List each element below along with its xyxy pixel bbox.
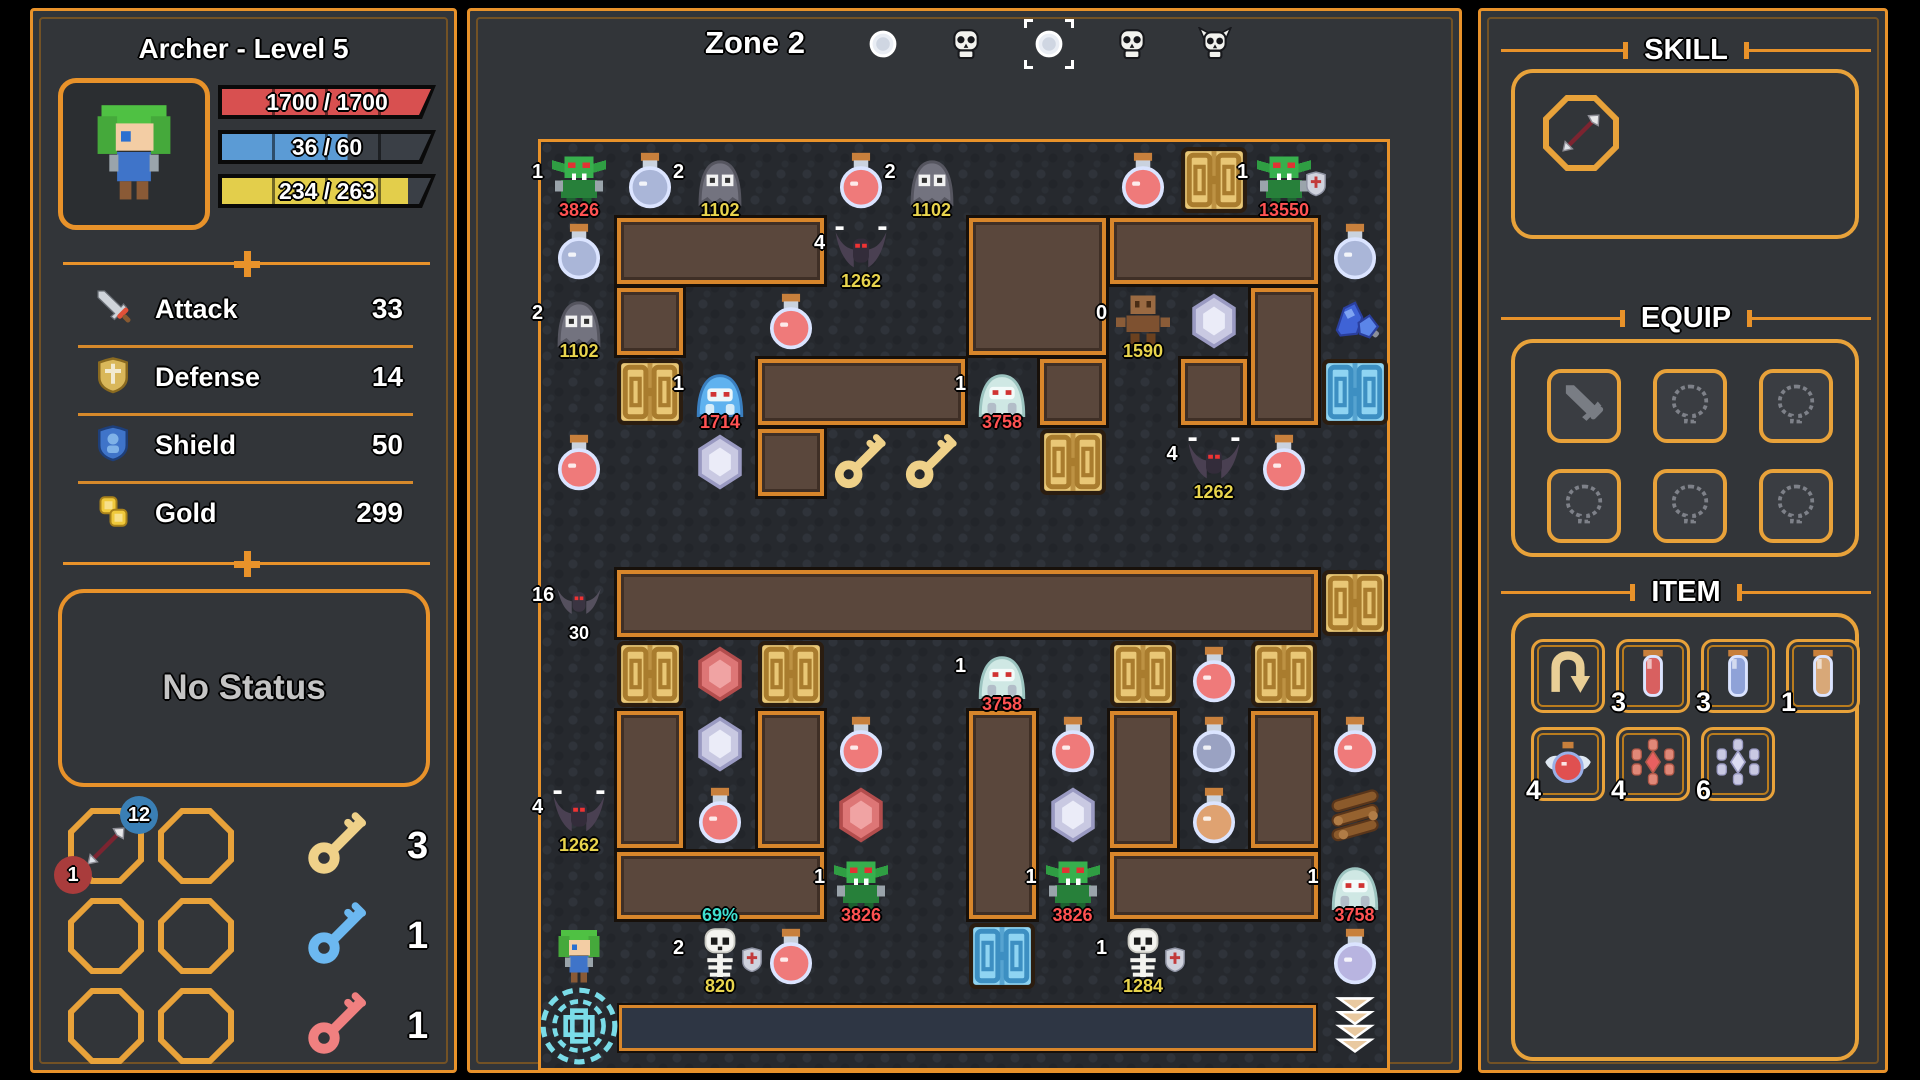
exp-value: 234 / 263: [218, 174, 436, 208]
wall-block: [969, 218, 1106, 355]
map-door-yellow[interactable]: [1108, 639, 1178, 709]
map-ghost[interactable]: 21102: [544, 286, 614, 356]
enemy-count: 2: [673, 937, 684, 960]
door-blue-sprite: [969, 923, 1035, 989]
sword-icon: [93, 287, 155, 332]
enemy-count: 1: [955, 373, 966, 396]
red-key-row: 1: [305, 988, 455, 1064]
enemy-count: 16: [532, 584, 554, 607]
item-slot-gem-cluster-white[interactable]: 6: [1701, 727, 1775, 801]
enemy-count: 0: [1096, 302, 1107, 325]
map-portal: [544, 991, 614, 1061]
door-yellow-sprite: [1110, 641, 1176, 707]
enemy-count: 1: [955, 655, 966, 678]
map-potion-red[interactable]: [1108, 145, 1178, 215]
map-goblin[interactable]: 113550: [1249, 145, 1319, 215]
map-slime-white[interactable]: 13758: [1320, 850, 1390, 920]
empty-slot: [164, 814, 228, 878]
key-yellow-sprite: [832, 433, 890, 491]
map-gem-red[interactable]: [826, 780, 896, 850]
map-potion-red[interactable]: [685, 780, 755, 850]
map-skeleton[interactable]: 69%2820: [685, 921, 755, 991]
enemy-hp: 1262: [1169, 482, 1259, 503]
stat-value: 33: [372, 293, 403, 325]
return-scroll-icon: [1542, 648, 1594, 705]
sword-icon: [1559, 379, 1609, 434]
blue-key-row: 1: [305, 898, 455, 974]
wall-block: [617, 570, 1318, 637]
empty-slot: [74, 994, 138, 1058]
selection-bracket: [1024, 19, 1033, 28]
enemy-count: 1: [814, 866, 825, 889]
gem-white-sprite: [1185, 292, 1243, 350]
enemy-hp: 1102: [534, 341, 624, 362]
map-potion-red[interactable]: [756, 921, 826, 991]
blue-key-icon: [305, 901, 371, 972]
item-slot-return-scroll[interactable]: [1531, 639, 1605, 713]
gem-white-sprite: [691, 433, 749, 491]
potion-red-sprite: [691, 786, 749, 844]
quick-skill-slot[interactable]: [158, 898, 234, 974]
enemy-hp: 13550: [1239, 200, 1329, 221]
item-box: 331446: [1511, 613, 1859, 1061]
item-slot-vial-tan[interactable]: 1: [1786, 639, 1860, 713]
item-title: ITEM: [1645, 576, 1726, 609]
equip-slot-amulet[interactable]: [1759, 469, 1833, 543]
item-count: 1: [1781, 687, 1796, 718]
enemy-hp: 30: [534, 623, 624, 644]
door-yellow-sprite: [758, 641, 824, 707]
separator: [78, 345, 413, 348]
selection-bracket: [1065, 60, 1074, 69]
stat-label: Gold: [155, 498, 356, 529]
item-slot-winged-potion[interactable]: 4: [1531, 727, 1605, 801]
zone-title: Zone 2: [640, 25, 870, 61]
map-door-blue[interactable]: [967, 921, 1037, 991]
potion-slate-sprite: [1185, 715, 1243, 773]
door-yellow-sprite: [1251, 641, 1317, 707]
equip-slot-amulet[interactable]: [1653, 369, 1727, 443]
gem-cluster-white-icon: [1712, 736, 1764, 793]
skill-cost-badge: 1: [54, 856, 92, 894]
enemy-hp: 1102: [675, 200, 765, 221]
zone-nav-icons: [866, 27, 1232, 61]
map-key-yellow[interactable]: [897, 427, 967, 497]
map-potion-red[interactable]: [756, 286, 826, 356]
stat-value: 299: [356, 497, 403, 529]
red-key-icon: [305, 991, 371, 1062]
stat-defense: Defense 14: [93, 354, 403, 400]
potion-red-sprite: [550, 433, 608, 491]
amulet-icon: [1771, 479, 1821, 534]
item-slot-vial-blue[interactable]: 3: [1701, 639, 1775, 713]
quick-skill-slot[interactable]: [68, 898, 144, 974]
empty-slot: [164, 904, 228, 968]
map-gem-white[interactable]: [685, 427, 755, 497]
coins-icon: [93, 491, 155, 536]
vial-tan-icon: [1797, 648, 1849, 705]
gem-cluster-red-icon: [1627, 736, 1679, 793]
yellow-key-icon: [305, 811, 371, 882]
map-potion-red[interactable]: [544, 427, 614, 497]
selection-bracket: [1024, 60, 1033, 69]
wall-block: [1110, 852, 1318, 919]
map-gem-white[interactable]: [1179, 286, 1249, 356]
map-potion-orange[interactable]: [1179, 780, 1249, 850]
map-door-yellow[interactable]: [615, 639, 685, 709]
item-count: 3: [1696, 687, 1711, 718]
item-section-header: ITEM: [1501, 577, 1871, 607]
vial-red-icon: [1627, 648, 1679, 705]
amulet-icon: [1665, 479, 1715, 534]
map-arrows: [1320, 991, 1390, 1061]
map-bat[interactable]: 41262: [826, 216, 896, 286]
enemy-hp: 3826: [1028, 905, 1118, 926]
stat-attack: Attack 33: [93, 286, 403, 332]
enemy-count: 1: [673, 373, 684, 396]
map-goblin[interactable]: 13826: [1038, 850, 1108, 920]
stat-label: Shield: [155, 430, 372, 461]
amulet-icon: [1559, 479, 1609, 534]
enemy-hp: 1262: [534, 835, 624, 856]
mp-bar: 36 / 60: [218, 130, 436, 164]
skill-slot[interactable]: [1543, 95, 1619, 171]
equip-section-header: EQUIP: [1501, 303, 1871, 333]
archer-avatar: [82, 100, 186, 209]
equip-title: EQUIP: [1635, 302, 1737, 335]
enemy-hp: 1102: [887, 200, 977, 221]
enemy-count: 4: [1167, 443, 1178, 466]
map-door-yellow[interactable]: [1038, 427, 1108, 497]
map-potion-red[interactable]: [1038, 709, 1108, 779]
wall-block: [1251, 711, 1318, 848]
potion-red-sprite: [832, 151, 890, 209]
map-door-yellow[interactable]: [756, 639, 826, 709]
equip-slot-amulet[interactable]: [1759, 369, 1833, 443]
hp-value: 1700 / 1700: [218, 85, 436, 119]
dungeon-map: 1382621102211021135504126221102015901171…: [538, 139, 1390, 1071]
wall-block: [758, 711, 825, 848]
shield-gold-icon: [93, 355, 155, 400]
shield-blue-icon: [93, 423, 155, 468]
empty-slot: [164, 994, 228, 1058]
enemy-count: 2: [885, 161, 896, 184]
quick-skill-slot[interactable]: [158, 808, 234, 884]
item-slot-gem-cluster-red[interactable]: 4: [1616, 727, 1690, 801]
zone-nav-demon-skull[interactable]: [1198, 27, 1232, 61]
item-count: 6: [1696, 775, 1711, 806]
map-panel: Zone 2 138262110221102113550412622110201…: [467, 8, 1462, 1073]
map-potion-blue[interactable]: [1320, 216, 1390, 286]
wall-block: [758, 359, 966, 426]
wall-block: [617, 218, 825, 285]
separator: [78, 413, 413, 416]
hp-bar: 1700 / 1700: [218, 85, 436, 119]
item-count: 4: [1611, 775, 1626, 806]
map-door-blue[interactable]: [1320, 357, 1390, 427]
gem-white-sprite: [1044, 786, 1102, 844]
potion-red-sprite: [1114, 151, 1172, 209]
bottom-trench: [619, 1005, 1316, 1051]
door-yellow-sprite: [617, 641, 683, 707]
arrows-sprite: [1326, 997, 1384, 1055]
wall-block: [1110, 711, 1177, 848]
red-key-count: 1: [407, 1005, 428, 1048]
map-bat[interactable]: 41262: [544, 780, 614, 850]
status-text: No Status: [162, 668, 325, 708]
wall-block: [1181, 359, 1248, 426]
wall-block: [617, 711, 684, 848]
player-sprite: [550, 927, 608, 985]
divider-ornament: [63, 249, 430, 279]
enemy-hp: 3758: [957, 412, 1047, 433]
character-portrait: [58, 78, 210, 230]
potion-red-sprite: [762, 292, 820, 350]
separator: [78, 481, 413, 484]
map-ghost[interactable]: 21102: [685, 145, 755, 215]
enemy-count: 1: [1096, 937, 1107, 960]
wall-block: [1110, 218, 1318, 285]
stat-gold: Gold 299: [93, 490, 403, 536]
potion-blue-sprite: [550, 222, 608, 280]
map-door-yellow[interactable]: [1249, 639, 1319, 709]
enemy-count: 2: [532, 302, 543, 325]
winged-potion-icon: [1542, 736, 1594, 793]
map-potion-blue[interactable]: [544, 216, 614, 286]
yellow-key-count: 3: [407, 825, 428, 868]
wall-block: [617, 288, 684, 355]
character-panel: Archer - Level 5 1700 / 1700 36 / 60 234…: [30, 8, 457, 1073]
stat-value: 14: [372, 361, 403, 393]
portal-sprite: [538, 985, 620, 1067]
map-bat[interactable]: 41262: [1179, 427, 1249, 497]
map-potion-red[interactable]: [826, 709, 896, 779]
wood-sprite: [1326, 786, 1384, 844]
quick-skill-slot[interactable]: [68, 988, 144, 1064]
divider-ornament: [63, 549, 430, 579]
map-bat-small[interactable]: 1630: [544, 568, 614, 638]
empty-slot: [74, 904, 138, 968]
zone-nav-skull[interactable]: [1115, 27, 1149, 61]
enemy-hp: 3826: [816, 905, 906, 926]
wall-block: [758, 429, 825, 496]
enemy-hp: 1262: [816, 271, 906, 292]
map-grid: 1382621102211021135504126221102015901171…: [544, 145, 1384, 1065]
map-golem[interactable]: 01590: [1108, 286, 1178, 356]
equip-slot-amulet[interactable]: [1653, 469, 1727, 543]
map-gem-red[interactable]: [685, 639, 755, 709]
skill-box: [1511, 69, 1859, 239]
wall-block: [1251, 288, 1318, 425]
shield-cross-badge: [1305, 171, 1327, 197]
item-slot-vial-red[interactable]: 3: [1616, 639, 1690, 713]
map-door-yellow[interactable]: [1320, 568, 1390, 638]
map-player[interactable]: [544, 921, 614, 991]
arrow-skill-icon: [1549, 101, 1613, 165]
potion-lavender-sprite: [1326, 927, 1384, 985]
potion-red-sprite: [762, 927, 820, 985]
amulet-icon: [1665, 379, 1715, 434]
quick-skill-slot[interactable]: [158, 988, 234, 1064]
vial-blue-icon: [1712, 648, 1764, 705]
map-gem-white[interactable]: [1038, 780, 1108, 850]
wall-block: [1040, 359, 1107, 426]
zone-nav-skull[interactable]: [949, 27, 983, 61]
map-gem-white[interactable]: [685, 709, 755, 779]
enemy-hp: 3758: [957, 694, 1047, 715]
map-potion-slate[interactable]: [1179, 709, 1249, 779]
enemy-hp: 1590: [1098, 341, 1188, 362]
map-potion-red[interactable]: [1320, 709, 1390, 779]
enemy-count: 2: [673, 161, 684, 184]
enemy-count: 1: [532, 161, 543, 184]
equip-slot-amulet[interactable]: [1547, 469, 1621, 543]
map-ghost[interactable]: 21102: [897, 145, 967, 215]
map-potion-red[interactable]: [1249, 427, 1319, 497]
enemy-count: 1: [1308, 866, 1319, 889]
skill-charge-badge: 12: [120, 796, 158, 834]
stat-label: Attack: [155, 294, 372, 325]
zone-nav-orb[interactable]: [866, 27, 900, 61]
map-skeleton[interactable]: 11284: [1108, 921, 1178, 991]
map-slime-white[interactable]: 13758: [967, 357, 1037, 427]
equip-box: [1511, 339, 1859, 557]
potion-blue-sprite: [1326, 222, 1384, 280]
stat-label: Defense: [155, 362, 372, 393]
enemy-hp: 820: [675, 976, 765, 997]
yellow-key-row: 3: [305, 808, 455, 884]
map-potion-red[interactable]: [1179, 639, 1249, 709]
map-slime-white[interactable]: 13758: [967, 639, 1037, 709]
blue-key-count: 1: [407, 915, 428, 958]
map-goblin[interactable]: 13826: [826, 850, 896, 920]
enemy-count: 1: [1026, 866, 1037, 889]
map-goblin[interactable]: 13826: [544, 145, 614, 215]
map-key-yellow[interactable]: [826, 427, 896, 497]
potion-red-sprite: [1326, 715, 1384, 773]
enemy-extra-label: 69%: [685, 905, 755, 926]
crystal-blue-sprite: [1326, 292, 1384, 350]
status-box: No Status: [58, 589, 430, 787]
enemy-count: 4: [532, 796, 543, 819]
potion-blue-sprite: [621, 151, 679, 209]
map-wood[interactable]: [1320, 780, 1390, 850]
map-slime-blue[interactable]: 11714: [685, 357, 755, 427]
enemy-count: 1: [1237, 161, 1248, 184]
map-potion-lavender[interactable]: [1320, 921, 1390, 991]
gem-red-sprite: [832, 786, 890, 844]
potion-red-sprite: [1044, 715, 1102, 773]
door-yellow-sprite: [1040, 429, 1106, 495]
map-crystal-blue[interactable]: [1320, 286, 1390, 356]
enemy-count: 4: [814, 232, 825, 255]
stat-value: 50: [372, 429, 403, 461]
door-blue-sprite: [1322, 359, 1388, 425]
selection-bracket: [1065, 19, 1074, 28]
door-yellow-sprite: [1322, 570, 1388, 636]
zone-nav-orb[interactable]: [1032, 27, 1066, 61]
amulet-icon: [1771, 379, 1821, 434]
potion-red-sprite: [1255, 433, 1313, 491]
character-title: Archer - Level 5: [33, 33, 454, 65]
item-count: 3: [1611, 687, 1626, 718]
skill-section-header: SKILL: [1501, 35, 1871, 65]
gem-red-sprite: [691, 645, 749, 703]
enemy-hp: 1284: [1098, 976, 1188, 997]
potion-red-sprite: [832, 715, 890, 773]
shield-cross-badge: [1164, 947, 1186, 973]
inventory-panel: SKILL EQUIP ITEM 331446: [1478, 8, 1888, 1073]
mp-value: 36 / 60: [218, 130, 436, 164]
skill-title: SKILL: [1638, 34, 1734, 67]
key-yellow-sprite: [903, 433, 961, 491]
item-count: 4: [1526, 775, 1541, 806]
equip-slot-sword[interactable]: [1547, 369, 1621, 443]
exp-bar: 234 / 263: [218, 174, 436, 208]
gem-white-sprite: [691, 715, 749, 773]
potion-orange-sprite: [1185, 786, 1243, 844]
stat-shield: Shield 50: [93, 422, 403, 468]
potion-red-sprite: [1185, 645, 1243, 703]
